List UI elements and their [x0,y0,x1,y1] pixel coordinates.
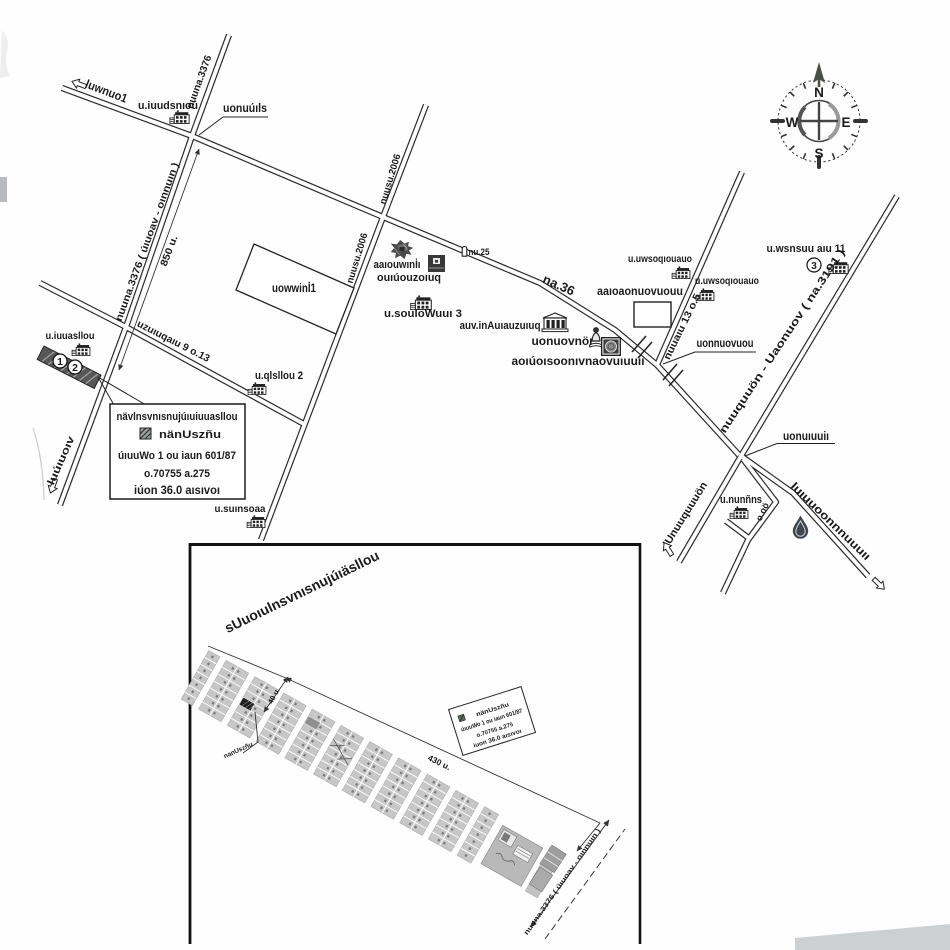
svg-text:o.70755 a.275: o.70755 a.275 [144,468,210,480]
svg-text:u.uwsoqıouauo: u.uwsoqıouauo [628,254,692,265]
svg-text:u.iuuasllou: u.iuuasllou [46,331,95,342]
svg-text:uowwinİ1: uowwinİ1 [272,282,317,295]
svg-text:u.uwsoqıouauo: u.uwsoqıouauo [695,276,759,287]
svg-text:1: 1 [57,356,63,368]
svg-text:ouıúouzoıuq: ouıúouzoıuq [377,272,441,284]
svg-text:aoıúoısoonıvnaovuıuuiı: aoıúoısoonıvnaovuıuuiı [512,356,645,368]
svg-text:uonuovnöı: uonuovnöı [532,336,593,348]
svg-text:auv.inAuıauzuıuq: auv.inAuıauzuıuq [460,320,541,332]
svg-text:N: N [814,85,824,100]
svg-text:3: 3 [811,261,817,272]
svg-text:u.souloWuuı 3: u.souloWuuı 3 [384,308,462,320]
svg-text:u.suınsoaa: u.suınsoaa [215,503,266,515]
svg-text:S: S [814,146,823,161]
svg-text:nävlnsvnısnujúıuiuuasllou: nävlnsvnısnujúıuiuuasllou [117,411,238,423]
svg-text:uonuúıls: uonuúıls [223,103,267,115]
svg-text:nu.25: nu.25 [469,247,491,258]
svg-text:u.qlsllou 2: u.qlsllou 2 [255,370,303,382]
svg-text:úıuuWo 1 ou iaun 601/87: úıuuWo 1 ou iaun 601/87 [118,450,236,462]
svg-text:aaıouwınİı: aaıouwınİı [374,258,421,271]
svg-text:2: 2 [72,362,78,374]
svg-text:uonuıuuiı: uonuıuuiı [783,431,829,443]
svg-text:iúon 36.0 aısıvoı: iúon 36.0 aısıvoı [134,485,220,497]
svg-text:nänUszñu: nänUszñu [159,429,221,441]
svg-text:E: E [841,115,850,130]
svg-text:aaıoaonuovuouu: aaıoaonuovuouu [597,286,683,298]
svg-text:W: W [786,115,799,130]
svg-text:u.nunñns: u.nunñns [720,494,762,506]
svg-text:uonnuovuou: uonnuovuou [697,338,754,350]
